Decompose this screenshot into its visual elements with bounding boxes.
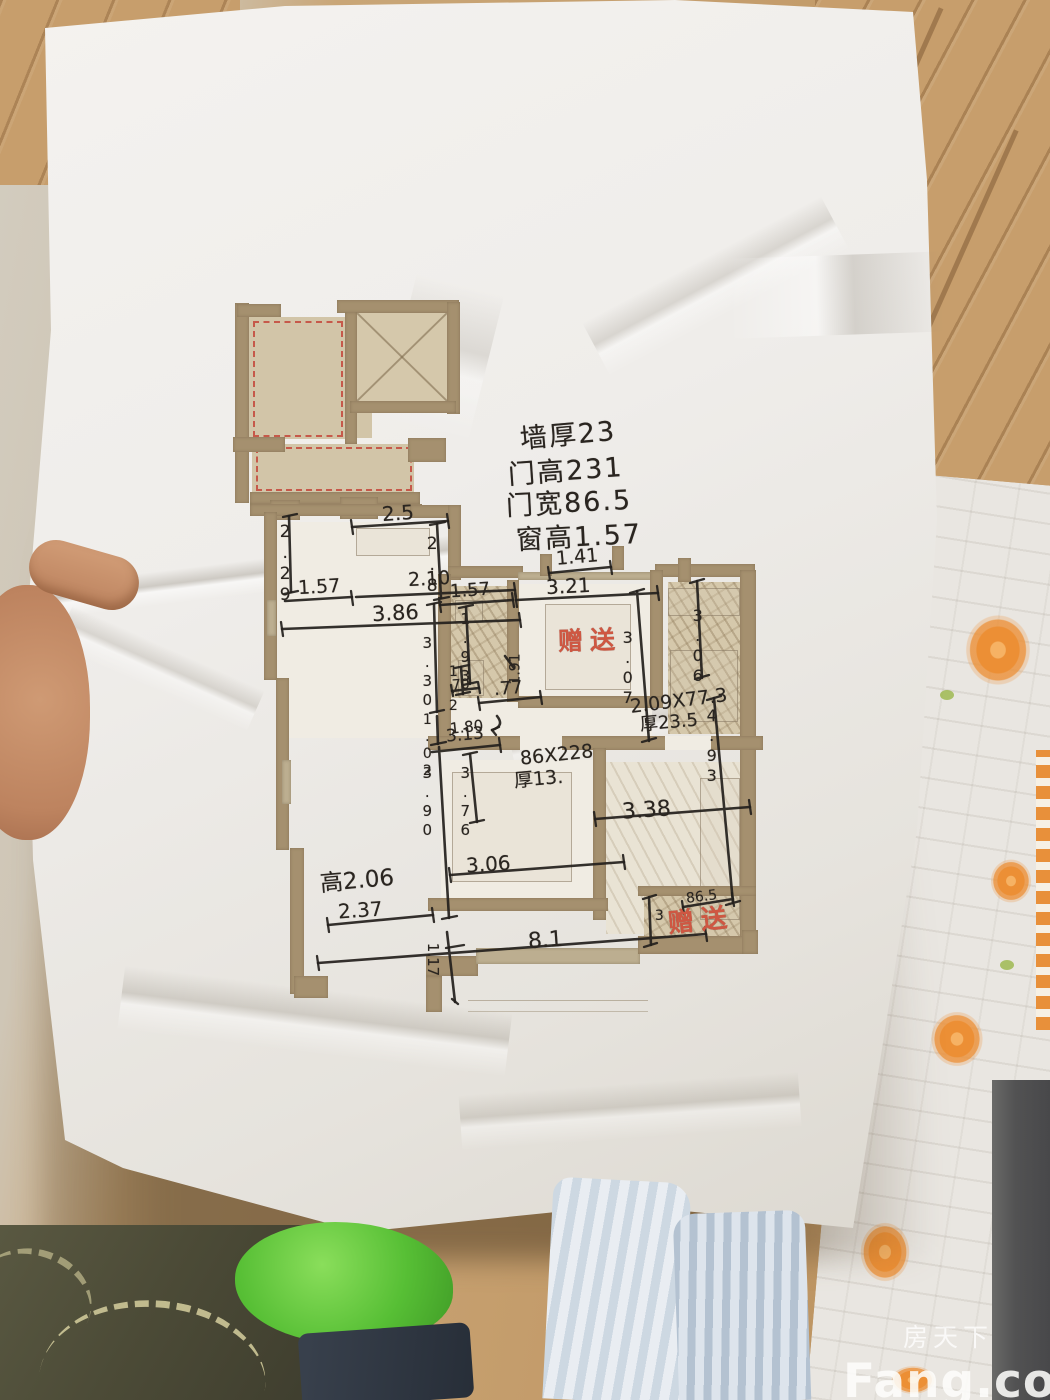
dimension-label: 3.38 bbox=[621, 798, 671, 823]
gift-label: 赠送 bbox=[558, 627, 623, 654]
dimension-label: 3.21 bbox=[546, 575, 592, 597]
dimension-label: 86X228 bbox=[519, 742, 594, 769]
pant-leg-left bbox=[542, 1177, 691, 1400]
dimension-label: 3.06 bbox=[690, 606, 705, 686]
dimension-label: 1.91 bbox=[509, 653, 523, 684]
dimension-label: 86.5 bbox=[685, 888, 718, 906]
annotations-layer: 墙厚23门高231门宽86.5窗高1.572.292.52.81.411.572… bbox=[0, 0, 1050, 1400]
dimension-label: 2.5 bbox=[381, 502, 414, 524]
pant-leg-right bbox=[673, 1210, 812, 1400]
dimension-label: 1.57 bbox=[298, 577, 341, 598]
dimension-label: 4.93 bbox=[704, 706, 719, 786]
dimension-label: 3.86 bbox=[371, 602, 419, 625]
dimension-label: 2.10 bbox=[408, 569, 451, 590]
navy-fabric bbox=[298, 1322, 475, 1400]
handwritten-note: 门宽86.5 bbox=[505, 487, 632, 521]
dimension-label: 1.17 bbox=[425, 943, 440, 976]
watermark-cn: 房天下 bbox=[903, 1318, 1050, 1354]
dimension-label: 3.13 bbox=[445, 725, 484, 745]
dimension-label: 2.37 bbox=[337, 898, 383, 921]
photo-scene: 墙厚23门高231门宽86.5窗高1.572.292.52.81.411.572… bbox=[0, 0, 1050, 1400]
handwritten-note: 门高231 bbox=[507, 454, 624, 489]
gift-label: 赠送 bbox=[667, 905, 735, 938]
watermark: 房天下 Fang.com bbox=[843, 1318, 1050, 1400]
dimension-label: 1.2 bbox=[446, 664, 459, 715]
dimension-label: 3.90 bbox=[420, 764, 434, 840]
dimension-label: 厚23.5 bbox=[639, 712, 698, 735]
dimension-label: 3.76 bbox=[458, 764, 472, 840]
dimension-label: 3.06 bbox=[465, 852, 511, 875]
handwritten-note: 墙厚23 bbox=[519, 418, 617, 453]
dimension-label: 1.57 bbox=[449, 581, 490, 602]
dimension-label: 3.30 bbox=[420, 634, 434, 710]
dimension-label: 3 bbox=[652, 908, 665, 925]
dimension-label: 2.29 bbox=[277, 522, 293, 606]
dimension-label: 8.1 bbox=[527, 929, 563, 953]
dimension-label: 厚13. bbox=[513, 768, 564, 791]
dimension-label: 1.41 bbox=[555, 546, 599, 569]
watermark-en: Fang.com bbox=[843, 1354, 1050, 1400]
dimension-label: 高2.06 bbox=[319, 867, 395, 896]
